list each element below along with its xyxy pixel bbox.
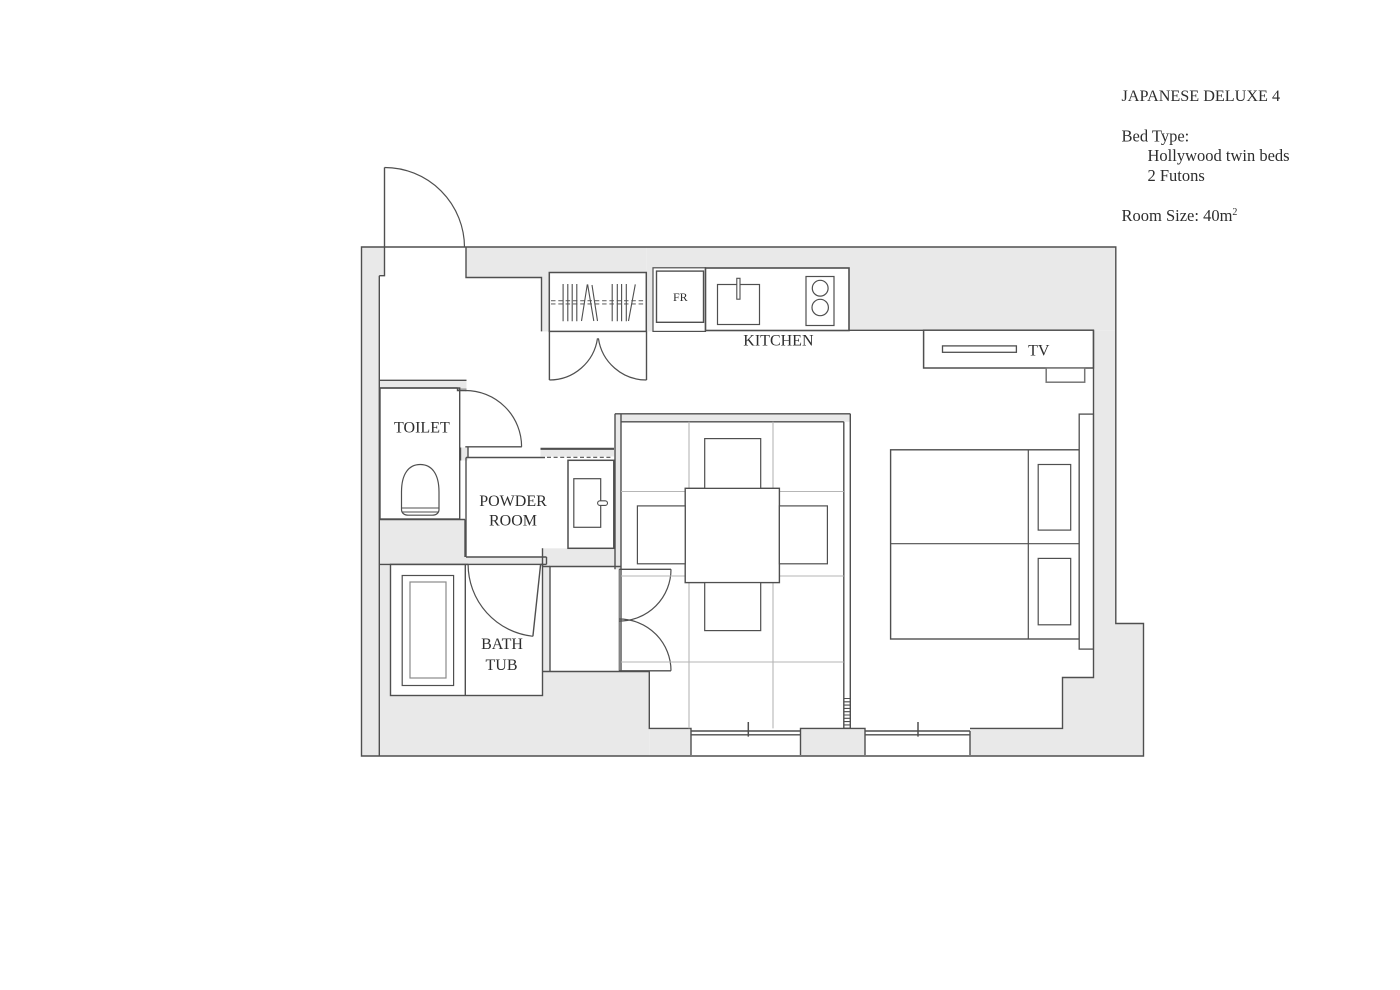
svg-text:TOILET: TOILET (394, 420, 450, 437)
svg-text:TUB: TUB (486, 657, 518, 674)
svg-text:KITCHEN: KITCHEN (743, 333, 814, 350)
svg-text:Hollywood twin beds: Hollywood twin beds (1148, 146, 1290, 165)
svg-text:Bed Type:: Bed Type: (1122, 126, 1190, 145)
svg-text:FR: FR (673, 290, 688, 304)
svg-text:2 Futons: 2 Futons (1148, 166, 1205, 185)
svg-text:JAPANESE DELUXE 4: JAPANESE DELUXE 4 (1122, 87, 1281, 105)
svg-text:BATH: BATH (481, 636, 523, 653)
svg-text:TV: TV (1028, 343, 1050, 360)
svg-text:Room Size: 40m2: Room Size: 40m2 (1122, 206, 1238, 225)
svg-text:ROOM: ROOM (489, 513, 537, 530)
svg-text:POWDER: POWDER (479, 493, 547, 510)
